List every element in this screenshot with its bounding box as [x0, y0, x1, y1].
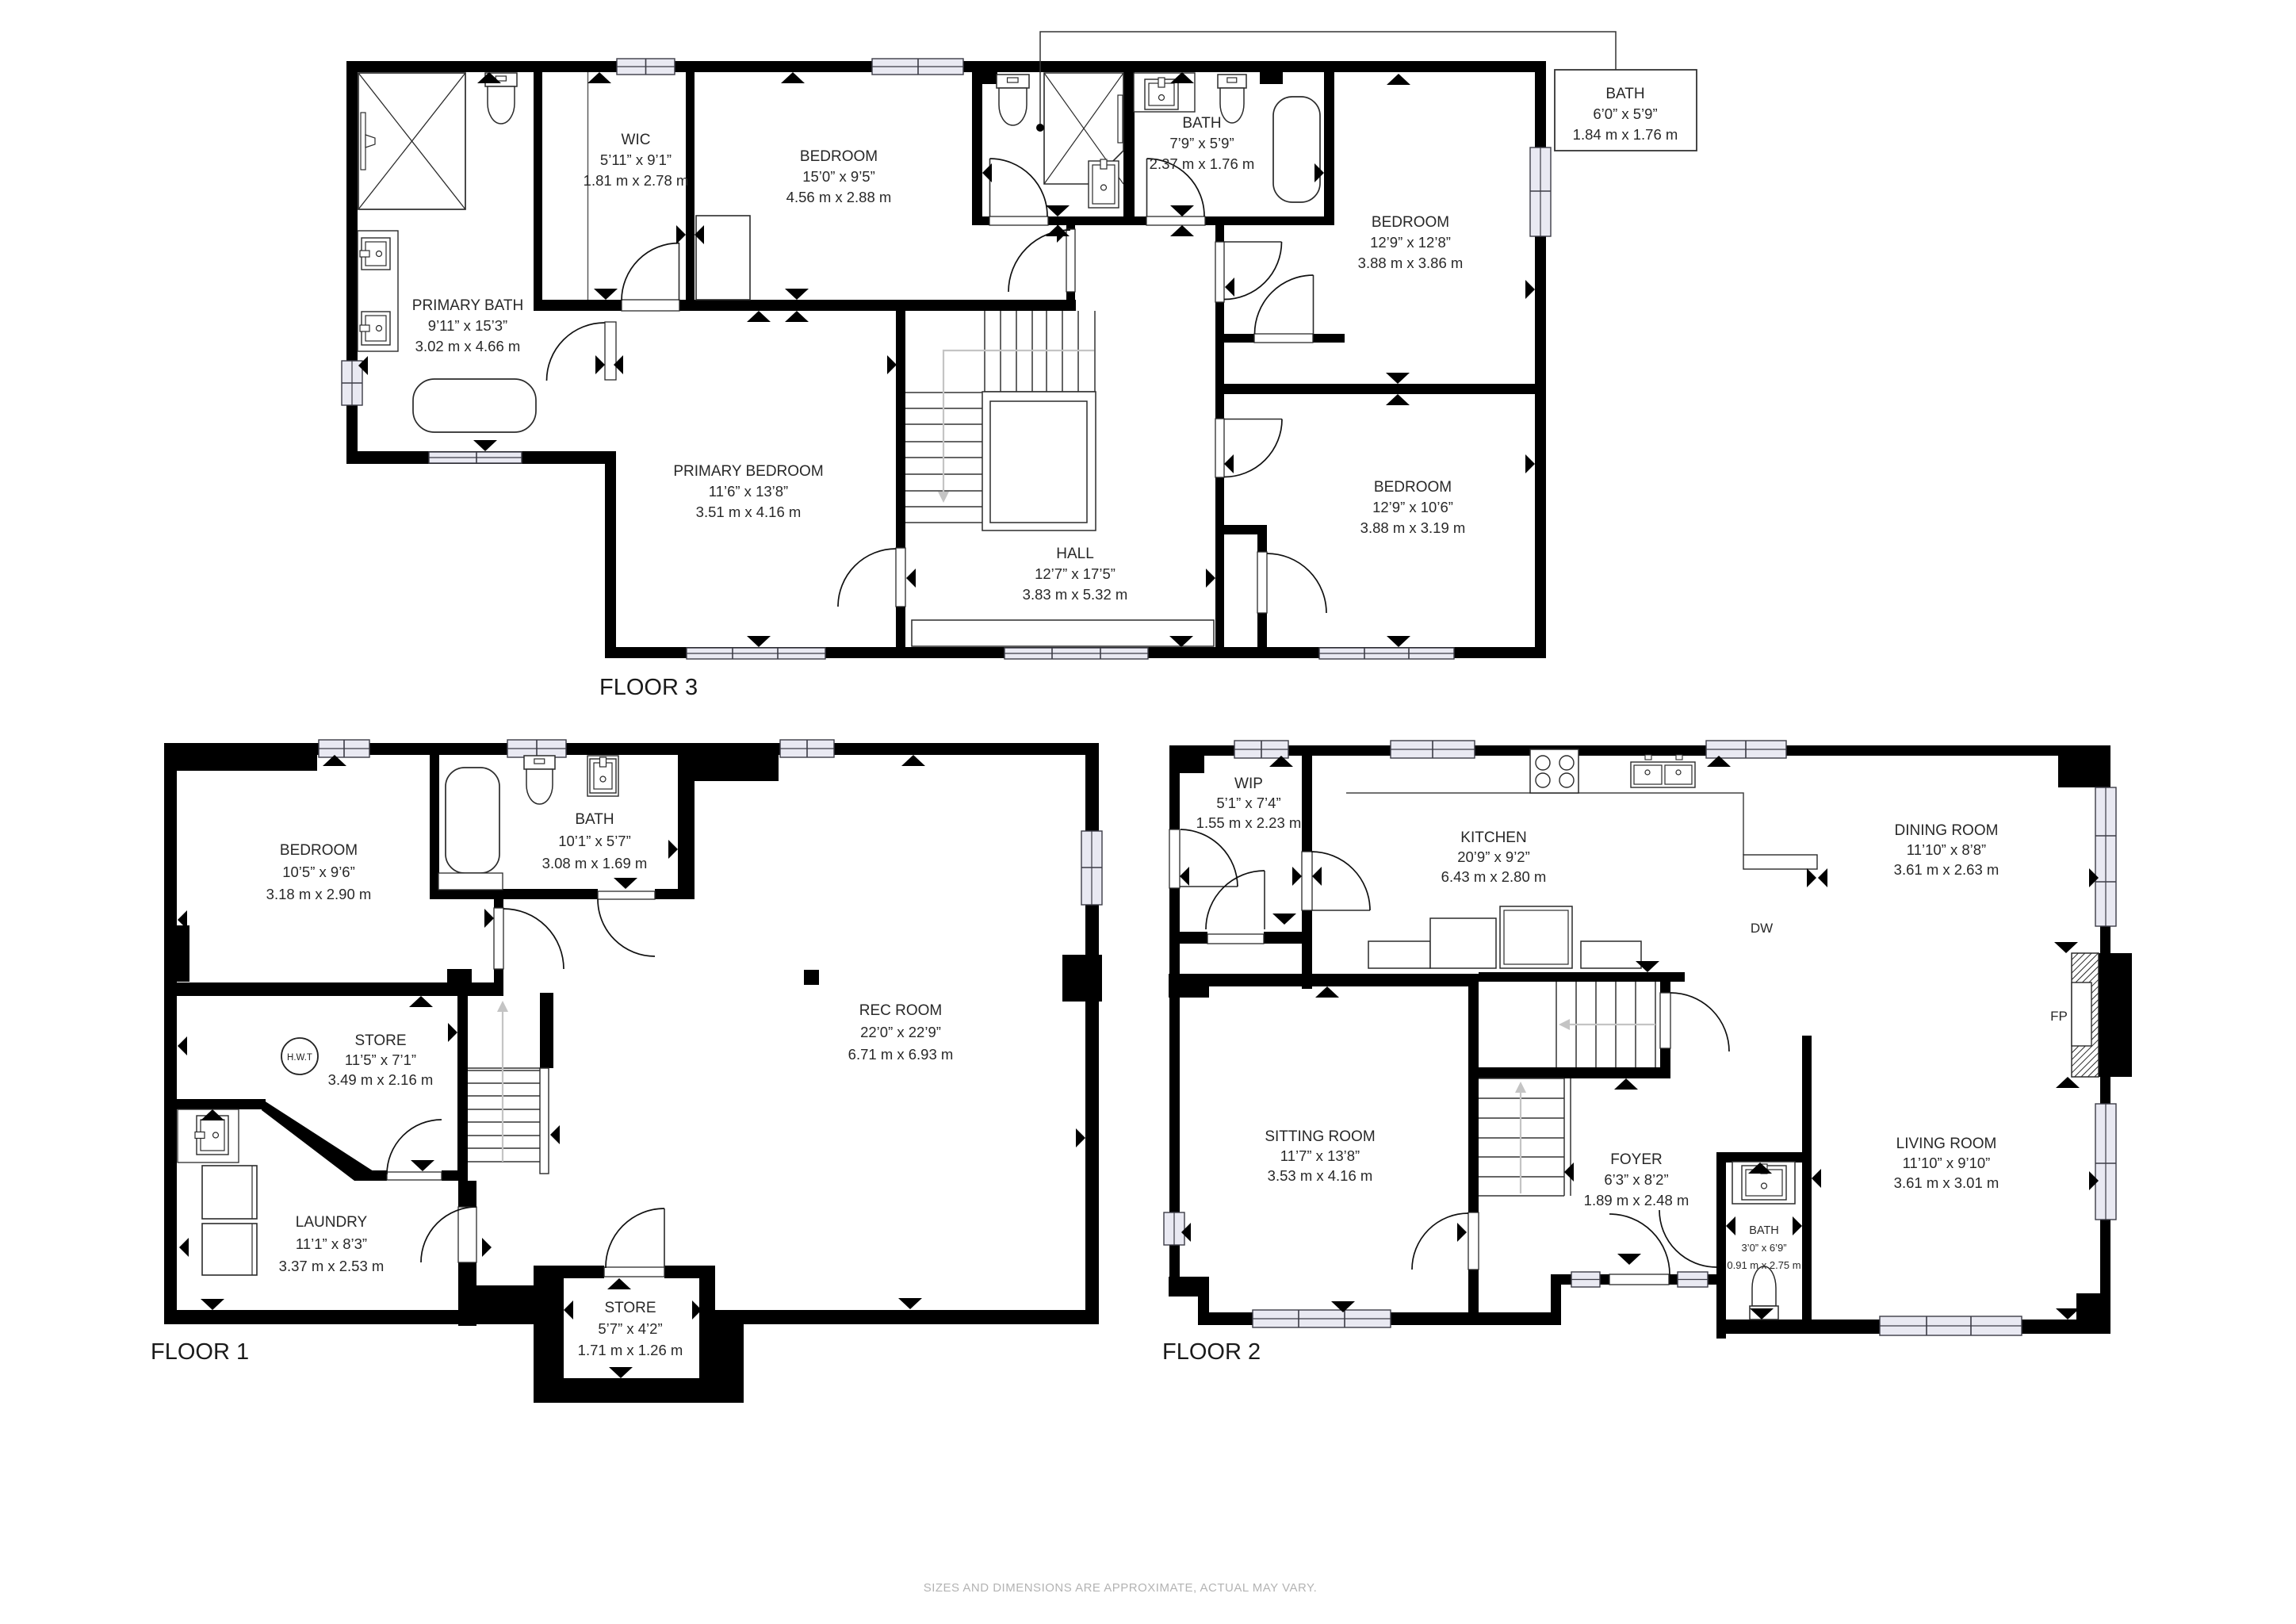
svg-text:6.71 m x 6.93 m: 6.71 m x 6.93 m [848, 1046, 954, 1063]
svg-text:STORE: STORE [604, 1300, 656, 1316]
svg-text:11’10” x 9’10”: 11’10” x 9’10” [1903, 1155, 1991, 1171]
svg-text:REC ROOM: REC ROOM [859, 1002, 943, 1019]
svg-text:LIVING ROOM: LIVING ROOM [1896, 1136, 1997, 1152]
svg-text:12’9” x 10’6”: 12’9” x 10’6” [1372, 499, 1453, 515]
svg-text:FLOOR 1: FLOOR 1 [151, 1339, 249, 1365]
svg-text:BATH: BATH [1749, 1224, 1779, 1237]
svg-text:PRIMARY BATH: PRIMARY BATH [412, 297, 523, 314]
svg-text:PRIMARY BEDROOM: PRIMARY BEDROOM [673, 463, 823, 480]
svg-text:10’5” x 9’6”: 10’5” x 9’6” [282, 864, 355, 880]
svg-text:1.81 m x 2.78 m: 1.81 m x 2.78 m [584, 172, 689, 189]
svg-text:1.71 m x 1.26 m: 1.71 m x 1.26 m [578, 1342, 683, 1358]
svg-text:BEDROOM: BEDROOM [800, 148, 878, 165]
svg-text:LAUNDRY: LAUNDRY [296, 1214, 368, 1231]
svg-text:3’0” x 6’9”: 3’0” x 6’9” [1741, 1242, 1786, 1254]
svg-text:5’1” x 7’4”: 5’1” x 7’4” [1216, 795, 1280, 811]
svg-text:3.49 m x 2.16 m: 3.49 m x 2.16 m [328, 1071, 434, 1088]
svg-text:FLOOR 3: FLOOR 3 [599, 675, 698, 700]
svg-text:4.56 m x 2.88 m: 4.56 m x 2.88 m [786, 189, 892, 205]
svg-text:5’11” x 9’1”: 5’11” x 9’1” [600, 151, 672, 168]
svg-text:FP: FP [2050, 1009, 2068, 1024]
svg-text:BATH: BATH [1182, 115, 1221, 132]
svg-text:1.55 m x 2.23 m: 1.55 m x 2.23 m [1196, 814, 1302, 831]
svg-text:3.08 m x 1.69 m: 3.08 m x 1.69 m [542, 855, 648, 871]
svg-text:22’0” x 22’9”: 22’0” x 22’9” [860, 1024, 941, 1040]
svg-text:15’0” x 9’5”: 15’0” x 9’5” [802, 168, 875, 185]
svg-text:BEDROOM: BEDROOM [1372, 214, 1449, 231]
svg-text:KITCHEN: KITCHEN [1460, 829, 1526, 846]
svg-text:6.43 m x 2.80 m: 6.43 m x 2.80 m [1441, 868, 1547, 885]
svg-text:6’0” x 5’9”: 6’0” x 5’9” [1593, 105, 1657, 122]
svg-text:FOYER: FOYER [1610, 1151, 1662, 1168]
svg-text:3.83 m x 5.32 m: 3.83 m x 5.32 m [1023, 586, 1128, 603]
svg-text:BATH: BATH [1605, 86, 1644, 102]
svg-text:11’6” x 13’8”: 11’6” x 13’8” [709, 483, 788, 500]
svg-text:11’10” x 8’8”: 11’10” x 8’8” [1907, 841, 1986, 858]
svg-text:2.37 m x 1.76 m: 2.37 m x 1.76 m [1150, 155, 1255, 172]
svg-text:11’5” x 7’1”: 11’5” x 7’1” [345, 1051, 416, 1068]
svg-text:11’7” x 13’8”: 11’7” x 13’8” [1280, 1147, 1360, 1164]
svg-text:HALL: HALL [1056, 546, 1094, 562]
svg-text:3.02 m x 4.66 m: 3.02 m x 4.66 m [415, 338, 521, 354]
svg-text:DW: DW [1751, 921, 1773, 936]
svg-text:3.37 m x 2.53 m: 3.37 m x 2.53 m [279, 1258, 385, 1274]
svg-text:WIC: WIC [622, 132, 651, 148]
svg-text:12’7” x 17’5”: 12’7” x 17’5” [1035, 565, 1115, 582]
svg-text:FLOOR 2: FLOOR 2 [1162, 1339, 1261, 1365]
svg-text:BEDROOM: BEDROOM [280, 842, 358, 859]
svg-text:SITTING ROOM: SITTING ROOM [1265, 1128, 1375, 1145]
svg-text:9’11” x 15’3”: 9’11” x 15’3” [428, 317, 507, 334]
svg-text:3.88 m x 3.86 m: 3.88 m x 3.86 m [1358, 255, 1464, 271]
svg-text:DINING ROOM: DINING ROOM [1895, 822, 1999, 839]
svg-text:5’7” x 4’2”: 5’7” x 4’2” [598, 1320, 662, 1337]
svg-text:BEDROOM: BEDROOM [1374, 479, 1452, 496]
svg-text:1.84 m x 1.76 m: 1.84 m x 1.76 m [1573, 126, 1678, 143]
svg-text:10’1” x 5’7”: 10’1” x 5’7” [558, 833, 631, 849]
svg-text:3.88 m x 3.19 m: 3.88 m x 3.19 m [1360, 519, 1466, 536]
svg-text:7’9” x 5’9”: 7’9” x 5’9” [1169, 135, 1234, 151]
svg-text:3.61 m x 3.01 m: 3.61 m x 3.01 m [1894, 1174, 1999, 1191]
svg-text:12’9” x 12’8”: 12’9” x 12’8” [1370, 234, 1451, 251]
svg-text:0.91 m x 2.75 m: 0.91 m x 2.75 m [1727, 1259, 1800, 1271]
svg-text:3.53 m x 4.16 m: 3.53 m x 4.16 m [1268, 1167, 1373, 1184]
svg-text:BATH: BATH [575, 811, 614, 828]
svg-text:3.61 m x 2.63 m: 3.61 m x 2.63 m [1894, 861, 1999, 878]
svg-text:3.51 m x 4.16 m: 3.51 m x 4.16 m [696, 504, 802, 520]
svg-text:1.89 m x 2.48 m: 1.89 m x 2.48 m [1584, 1192, 1689, 1208]
svg-text:6’3” x 8’2”: 6’3” x 8’2” [1604, 1171, 1668, 1188]
svg-text:H.W.T: H.W.T [287, 1053, 312, 1063]
svg-text:STORE: STORE [354, 1032, 406, 1049]
svg-text:SIZES AND DIMENSIONS ARE APPRO: SIZES AND DIMENSIONS ARE APPROXIMATE, AC… [924, 1581, 1318, 1595]
svg-text:3.18 m x 2.90 m: 3.18 m x 2.90 m [266, 886, 372, 902]
svg-text:11’1” x 8’3”: 11’1” x 8’3” [296, 1235, 367, 1252]
svg-text:WIP: WIP [1234, 776, 1263, 792]
svg-text:20’9” x 9’2”: 20’9” x 9’2” [1457, 848, 1530, 865]
